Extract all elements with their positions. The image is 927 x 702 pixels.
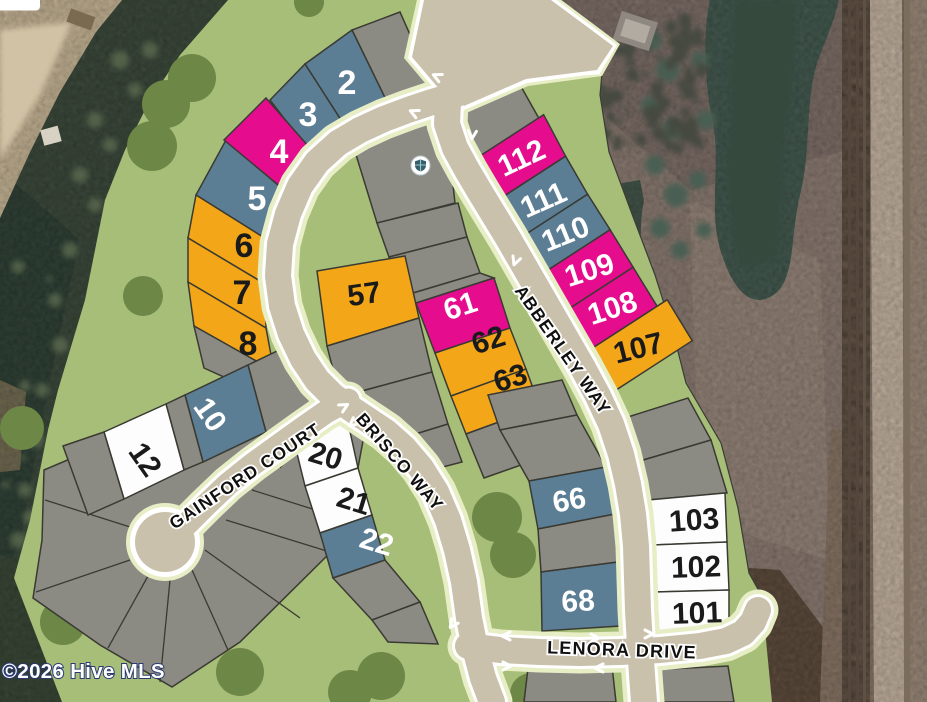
svg-text:102: 102 [670, 550, 721, 585]
svg-text:68: 68 [561, 584, 596, 619]
svg-text:6: 6 [235, 227, 254, 265]
svg-text:3: 3 [299, 96, 318, 134]
svg-text:©2026 Hive MLS: ©2026 Hive MLS [2, 660, 165, 683]
svg-text:4: 4 [270, 133, 289, 171]
svg-text:57: 57 [345, 276, 383, 313]
svg-text:103: 103 [668, 502, 720, 538]
svg-text:8: 8 [239, 325, 258, 363]
svg-text:66: 66 [550, 481, 589, 519]
svg-text:2: 2 [338, 64, 357, 102]
svg-text:5: 5 [248, 180, 267, 218]
svg-text:7: 7 [233, 274, 252, 312]
svg-text:101: 101 [671, 596, 722, 631]
